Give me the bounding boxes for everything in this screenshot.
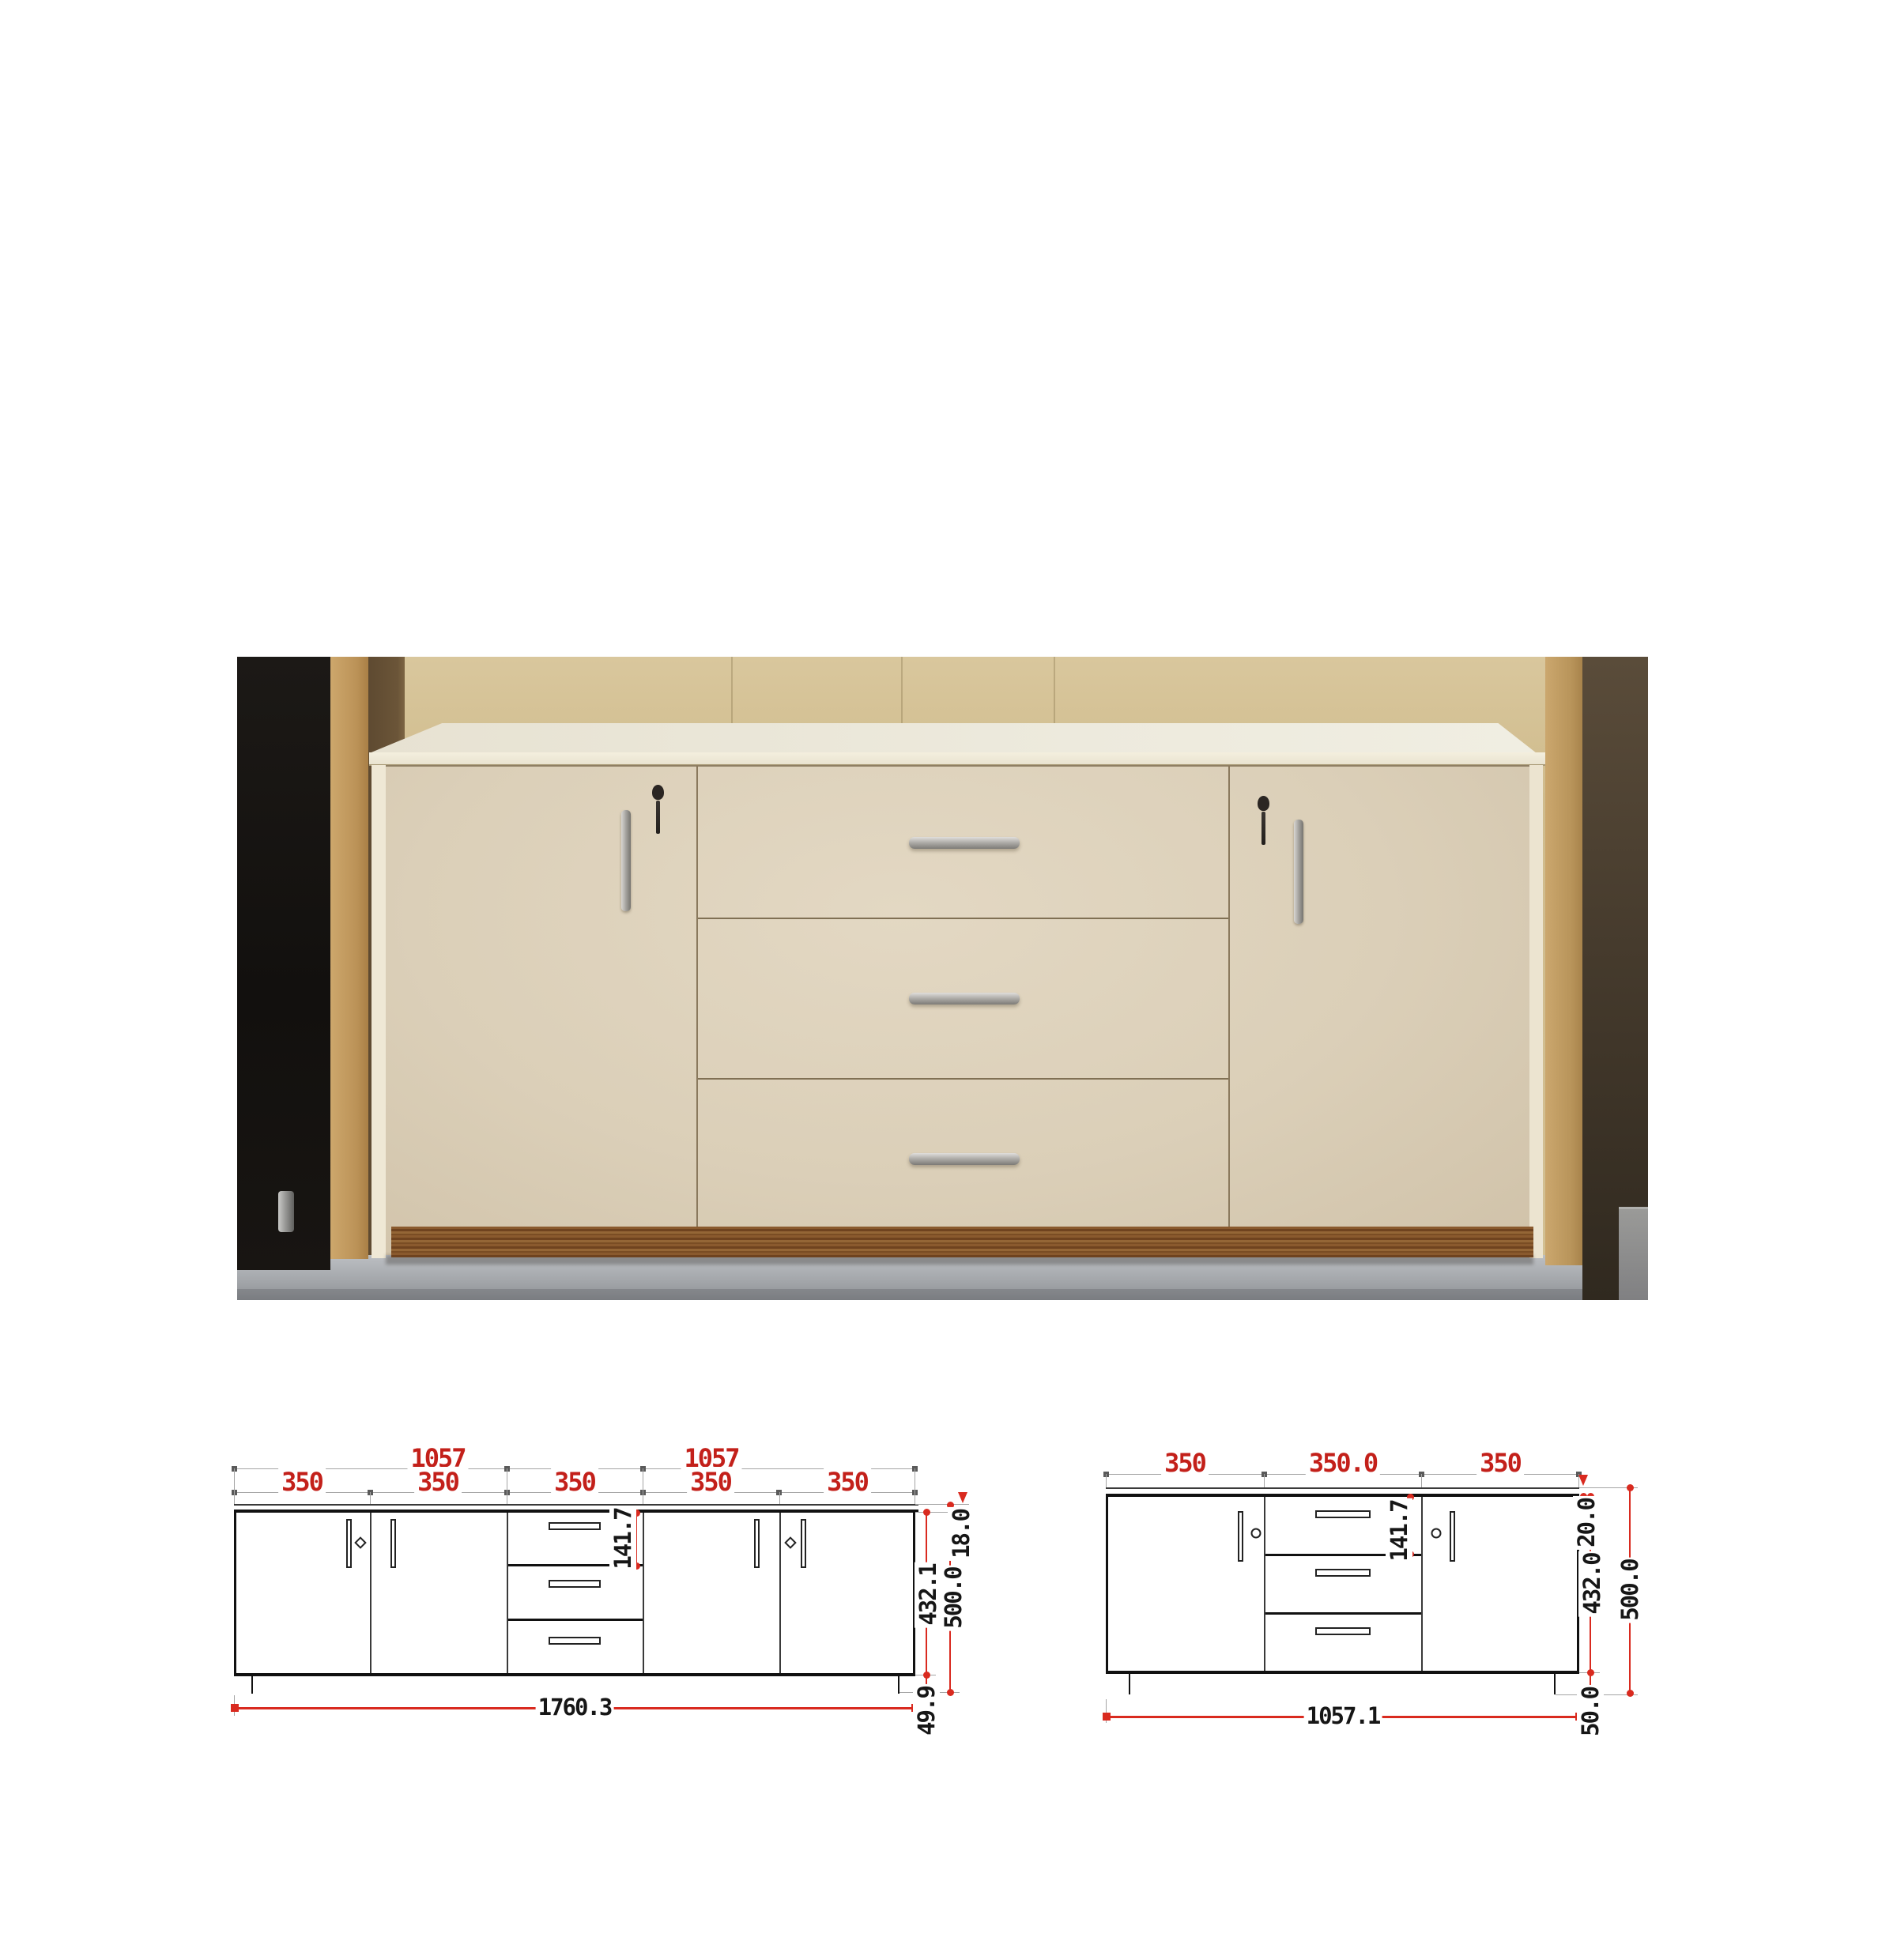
dim-label-350: 350 (278, 1467, 326, 1497)
counter-bottom-line (1106, 1494, 1579, 1497)
ext-line (643, 1468, 643, 1505)
dim-arrow (958, 1492, 967, 1503)
drawer-handle-1 (909, 837, 1020, 849)
drawer-handle-2 (909, 993, 1020, 1004)
dim-arrow (1578, 1475, 1588, 1486)
drawer-bank-edge (1264, 1497, 1265, 1671)
dim-dot (1627, 1690, 1634, 1697)
drawer-handle-3 (909, 1153, 1020, 1165)
dim-label-1057.1: 1057.1 (1304, 1702, 1382, 1729)
dim-label-20.0: 20.0 (1573, 1496, 1600, 1550)
ext-line (779, 1492, 780, 1505)
dim-label-500.0: 500.0 (940, 1565, 967, 1630)
body-bottom-edge (234, 1673, 915, 1676)
drawer-bank-edge (643, 1513, 644, 1673)
dim-label-500.0: 500.0 (1616, 1557, 1643, 1623)
floor-shadow (237, 1289, 1648, 1300)
door1-lock-icon (354, 1536, 367, 1549)
cabinet-side-panel-right (1529, 765, 1543, 1258)
face-top-gap (386, 765, 1529, 767)
dim-label-432.0: 432.0 (1578, 1551, 1605, 1616)
dim-label-432.1: 432.1 (915, 1562, 941, 1627)
dim-label-350: 350 (1476, 1448, 1524, 1478)
ext-line (1421, 1474, 1422, 1488)
ext-line (915, 1504, 969, 1505)
dim-label-49.9: 49.9 (913, 1684, 940, 1738)
dim-label-350: 350 (1161, 1448, 1209, 1478)
ext-line (1264, 1474, 1265, 1488)
dim-endpoint (231, 1704, 239, 1712)
leg-line (251, 1676, 253, 1694)
drawer2-handle (549, 1580, 601, 1588)
door-gap-line (370, 1513, 371, 1673)
leg-line (1554, 1674, 1556, 1694)
ext-line (370, 1492, 371, 1505)
drawer-separator (1265, 1612, 1421, 1615)
drawer2-handle (1315, 1569, 1371, 1577)
left-door-keys-icon (656, 801, 660, 834)
leg-line (1129, 1674, 1130, 1694)
drawer3-handle (1315, 1627, 1371, 1635)
drawer1-handle (549, 1522, 601, 1530)
dim-dot (947, 1689, 954, 1696)
right-door-handle (1294, 820, 1303, 924)
dim-label-350: 350 (824, 1467, 871, 1497)
drawer3-handle (549, 1637, 601, 1645)
alcove-shadow-right (1582, 657, 1648, 1300)
dim-dot (1627, 1484, 1634, 1491)
door2-handle (390, 1519, 396, 1568)
counter-bottom-line (234, 1510, 918, 1513)
drawer1-handle (1315, 1510, 1371, 1518)
dim-label-141.7: 141.7 (609, 1506, 636, 1571)
body-bottom-edge (1106, 1671, 1579, 1674)
dim-endpoint (1103, 1713, 1111, 1721)
right-door-handle (1450, 1511, 1455, 1562)
body-left-edge (234, 1513, 236, 1675)
body-left-edge (1106, 1497, 1108, 1673)
right-door-lock-icon (1431, 1528, 1442, 1539)
door-drawer-gap-right (1228, 766, 1230, 1256)
alcove-pillar-left (330, 657, 368, 1259)
ext-line (234, 1468, 235, 1505)
door-drawer-gap-left (696, 766, 698, 1256)
page-canvas: 1057 1057 350 350 350 350 350 (0, 0, 1897, 1960)
right-door-keys-icon (1262, 812, 1265, 845)
walnut-plinth (391, 1227, 1533, 1257)
drawer-gap-1 (698, 918, 1228, 919)
ext-line (1106, 1474, 1107, 1488)
drawer-bank-edge (507, 1513, 508, 1673)
tv-cabinet-dark (237, 657, 330, 1270)
cabinet-photo (237, 657, 1648, 1300)
drawer-gap-2 (698, 1078, 1228, 1080)
countertop-front-edge (369, 752, 1545, 766)
dim-label-50.0: 50.0 (1577, 1685, 1604, 1739)
drawer-bank-edge (1421, 1497, 1423, 1671)
right-door-lock-icon (1258, 796, 1269, 811)
left-door-handle (1238, 1511, 1243, 1562)
side-step (1619, 1207, 1648, 1300)
dim-label-141.7: 141.7 (1386, 1498, 1412, 1563)
dim-label-350: 350 (414, 1467, 462, 1497)
dim-label-1760.3: 1760.3 (536, 1694, 614, 1721)
left-door-lock-icon (652, 785, 664, 800)
door-gap-line (779, 1513, 781, 1673)
alcove-pillar-right (1545, 657, 1582, 1265)
tv-leg (278, 1191, 294, 1232)
door4-lock-icon (784, 1536, 797, 1549)
door4-handle (801, 1519, 806, 1568)
counter-top-line (1106, 1487, 1579, 1489)
dim-label-350.0: 350.0 (1306, 1448, 1380, 1478)
ext-line (507, 1468, 507, 1505)
dim-dot (923, 1509, 930, 1516)
cabinet-side-panel-left (371, 765, 386, 1258)
dim-label-18.0: 18.0 (948, 1507, 975, 1561)
counter-top-line (234, 1504, 918, 1506)
dim-label-350: 350 (551, 1467, 598, 1497)
door3-handle (754, 1519, 760, 1568)
dim-label-350: 350 (687, 1467, 734, 1497)
ext-line (915, 1468, 915, 1505)
left-door-handle (621, 810, 631, 911)
door1-handle (346, 1519, 352, 1568)
left-door-lock-icon (1251, 1528, 1262, 1539)
drawer-separator (508, 1619, 643, 1621)
leg-line (898, 1676, 899, 1694)
